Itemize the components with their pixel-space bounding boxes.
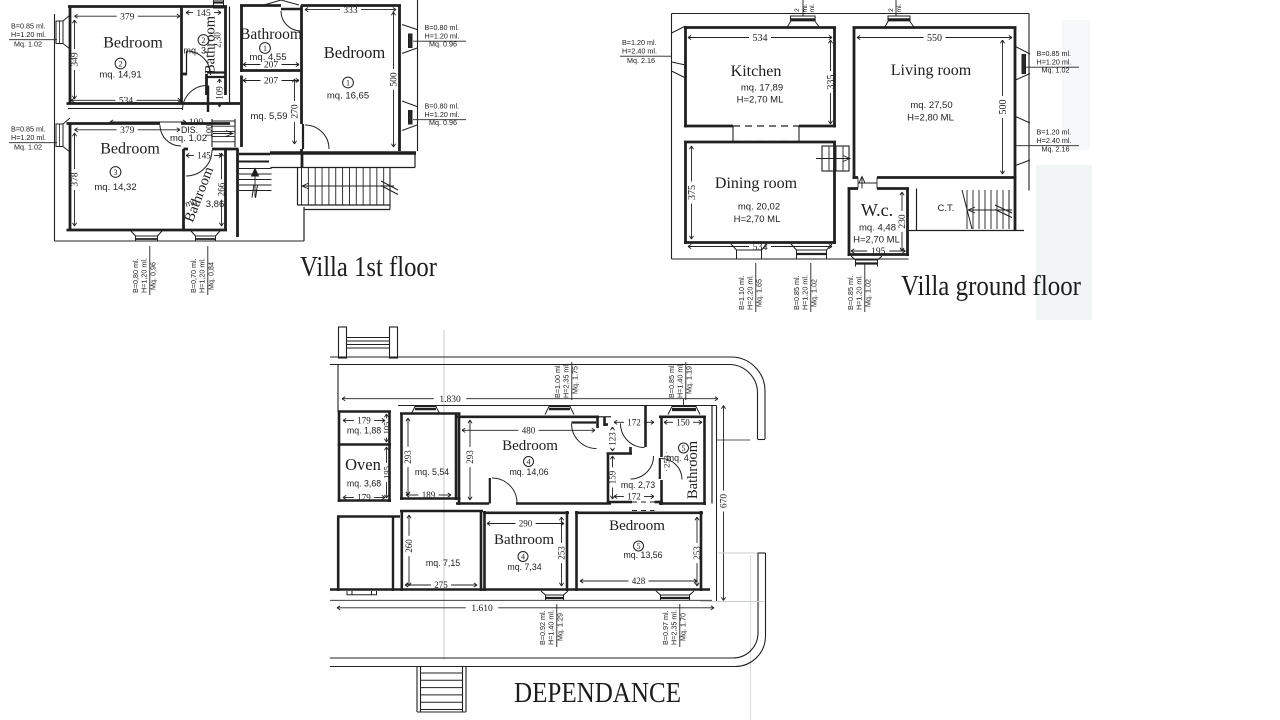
svg-text:H=2,70 ML: H=2,70 ML xyxy=(737,95,784,106)
svg-text:Villa 1st floor: Villa 1st floor xyxy=(300,251,437,283)
svg-text:335: 335 xyxy=(826,75,837,90)
svg-text:W.c.: W.c. xyxy=(861,200,893,220)
svg-text:ml.: ml. xyxy=(802,3,809,12)
svg-text:Villa ground floor: Villa ground floor xyxy=(901,270,1081,302)
svg-text:H=2.40 ml.: H=2.40 ml. xyxy=(622,47,657,56)
svg-text:1.830: 1.830 xyxy=(439,395,461,405)
svg-text:Mq. 1.70: Mq. 1.70 xyxy=(679,613,688,641)
svg-text:H=1.20 ml.: H=1.20 ml. xyxy=(11,30,46,39)
svg-text:Mq. 1.02: Mq. 1.02 xyxy=(810,279,819,307)
svg-text:Bedroom: Bedroom xyxy=(324,43,386,62)
svg-text:H=2.35 ml.: H=2.35 ml. xyxy=(670,610,679,645)
svg-text:H=1.20 ml.: H=1.20 ml. xyxy=(801,275,810,310)
svg-text:Dining room: Dining room xyxy=(715,175,798,192)
svg-text:150: 150 xyxy=(676,417,690,427)
svg-text:4: 4 xyxy=(527,457,531,466)
svg-text:2: 2 xyxy=(202,36,206,45)
svg-text:Mq. 0.96: Mq. 0.96 xyxy=(429,40,457,49)
svg-text:H=1,20 ml.: H=1,20 ml. xyxy=(198,258,207,293)
svg-text:195: 195 xyxy=(381,466,391,479)
svg-text:mq. 27,50: mq. 27,50 xyxy=(910,100,952,111)
svg-text:Mq. 1.02: Mq. 1.02 xyxy=(1042,66,1070,75)
svg-text:207: 207 xyxy=(264,61,279,71)
svg-text:253: 253 xyxy=(661,455,671,468)
svg-text:Mq. 2.16: Mq. 2.16 xyxy=(1042,145,1070,154)
svg-text:1.610: 1.610 xyxy=(471,604,493,614)
svg-text:378: 378 xyxy=(71,172,81,187)
svg-text:mq. 3,: mq. 3, xyxy=(183,46,208,56)
svg-text:Mq. 0.96: Mq. 0.96 xyxy=(429,118,457,127)
svg-text:333: 333 xyxy=(343,6,358,16)
svg-text:H=2,70 ML: H=2,70 ML xyxy=(734,214,781,225)
svg-text:mq. 14,06: mq. 14,06 xyxy=(509,467,548,477)
svg-text:293: 293 xyxy=(465,450,475,464)
svg-text:Mq. 1.75: Mq. 1.75 xyxy=(571,366,580,394)
svg-text:DEPENDANCE: DEPENDANCE xyxy=(514,678,681,709)
svg-text:270: 270 xyxy=(291,104,301,119)
svg-text:179: 179 xyxy=(357,416,371,426)
svg-text:mq. 4,48: mq. 4,48 xyxy=(859,223,896,234)
svg-text:189: 189 xyxy=(422,490,436,500)
svg-text:mq. 14,91: mq. 14,91 xyxy=(99,70,141,81)
svg-text:mq. 16,65: mq. 16,65 xyxy=(327,91,369,102)
svg-text:Bedroom: Bedroom xyxy=(103,35,163,52)
svg-text:2: 2 xyxy=(119,59,123,68)
svg-text:266: 266 xyxy=(217,182,227,196)
svg-text:230: 230 xyxy=(898,214,908,229)
svg-text:C.T.: C.T. xyxy=(938,203,955,214)
svg-text:mq. 5,54: mq. 5,54 xyxy=(415,467,449,477)
svg-text:428: 428 xyxy=(632,576,646,586)
svg-text:Mq. 1.02: Mq. 1.02 xyxy=(864,279,873,307)
svg-text:mq. 17,89: mq. 17,89 xyxy=(741,83,783,94)
svg-text:Mq. 1.19: Mq. 1.19 xyxy=(685,366,694,394)
svg-text:mq. 7,15: mq. 7,15 xyxy=(426,558,460,568)
svg-text:H=1.40 ml.: H=1.40 ml. xyxy=(547,610,556,645)
svg-text:Mq. 1.02: Mq. 1.02 xyxy=(14,40,42,49)
svg-text:Bedroom: Bedroom xyxy=(502,438,558,454)
svg-text:253: 253 xyxy=(692,546,702,560)
svg-text:H=2,70 ML: H=2,70 ML xyxy=(853,235,900,246)
svg-text:mq. 5,59: mq. 5,59 xyxy=(251,111,288,122)
svg-text:550: 550 xyxy=(927,33,942,44)
svg-text:Mq. 0,84: Mq. 0,84 xyxy=(207,262,216,290)
svg-text:mq. 13,56: mq. 13,56 xyxy=(623,550,662,560)
svg-text:mq. 1,88: mq. 1,88 xyxy=(347,426,381,436)
svg-text:500: 500 xyxy=(998,100,1009,115)
svg-text:534: 534 xyxy=(119,97,134,107)
svg-text:2,30: 2,30 xyxy=(213,32,223,48)
svg-text:179: 179 xyxy=(357,493,371,503)
svg-text:mq. 7,34: mq. 7,34 xyxy=(507,562,541,572)
svg-text:Bathroom: Bathroom xyxy=(181,164,217,225)
svg-text:105: 105 xyxy=(381,422,391,435)
svg-text:109: 109 xyxy=(215,86,225,100)
svg-text:670: 670 xyxy=(720,494,730,509)
svg-text:159: 159 xyxy=(608,470,618,484)
svg-text:375: 375 xyxy=(687,185,698,200)
svg-text:172: 172 xyxy=(627,492,641,502)
svg-text:mq. 2,73: mq. 2,73 xyxy=(621,480,655,490)
svg-text:534: 534 xyxy=(753,242,768,253)
svg-text:mq. 20,02: mq. 20,02 xyxy=(738,202,780,213)
svg-text:253: 253 xyxy=(557,546,567,560)
svg-text:534: 534 xyxy=(753,33,768,44)
svg-text:Bathroom: Bathroom xyxy=(685,440,701,499)
svg-text:H=1.20 ml.: H=1.20 ml. xyxy=(855,275,864,310)
svg-text:mq. 14,32: mq. 14,32 xyxy=(94,182,136,193)
svg-text:3: 3 xyxy=(114,168,118,177)
svg-text:379: 379 xyxy=(120,12,135,22)
svg-text:H=1.20 ml.: H=1.20 ml. xyxy=(11,133,46,142)
svg-text:Bathroom: Bathroom xyxy=(494,532,554,548)
svg-text:123: 123 xyxy=(608,432,618,446)
svg-text:H=1.40 ml.: H=1.40 ml. xyxy=(676,363,685,398)
svg-text:1: 1 xyxy=(346,78,350,87)
svg-text:H=2.35 ml.: H=2.35 ml. xyxy=(562,363,571,398)
svg-text:Mq. 1.02: Mq. 1.02 xyxy=(14,143,42,152)
svg-text:379: 379 xyxy=(120,126,135,136)
svg-text:4: 4 xyxy=(521,552,525,561)
svg-text:ml.: ml. xyxy=(809,3,816,12)
svg-text:275: 275 xyxy=(434,580,448,590)
svg-text:Bedroom: Bedroom xyxy=(100,141,160,158)
svg-text:100: 100 xyxy=(189,118,204,128)
svg-text:207: 207 xyxy=(264,77,279,87)
svg-text:Oven: Oven xyxy=(345,455,381,474)
svg-text:145: 145 xyxy=(197,151,211,161)
svg-text:H=2,80 ML: H=2,80 ML xyxy=(907,113,954,124)
svg-text:293: 293 xyxy=(403,450,413,464)
svg-text:290: 290 xyxy=(519,519,533,529)
svg-text:Mq. 0,96: Mq. 0,96 xyxy=(149,262,158,290)
svg-text:2: 2 xyxy=(794,8,801,12)
svg-text:mq. 3,68: mq. 3,68 xyxy=(347,479,381,489)
svg-text:mq. 1,02: mq. 1,02 xyxy=(170,133,207,144)
svg-text:349: 349 xyxy=(71,52,81,67)
svg-text:2: 2 xyxy=(888,8,895,12)
svg-text:Mq. 1.65: Mq. 1.65 xyxy=(755,279,764,307)
svg-text:Bedroom: Bedroom xyxy=(609,518,665,534)
svg-text:195: 195 xyxy=(871,247,886,257)
svg-text:Mq. 2.16: Mq. 2.16 xyxy=(627,56,655,65)
svg-text:Living room: Living room xyxy=(891,62,972,79)
svg-text:H=2.20 ml.: H=2.20 ml. xyxy=(746,275,755,310)
svg-text:H=1,20 ml.: H=1,20 ml. xyxy=(140,258,149,293)
svg-text:ml.: ml. xyxy=(896,3,903,12)
svg-text:Kitchen: Kitchen xyxy=(731,63,782,80)
svg-text:Mq. 1.29: Mq. 1.29 xyxy=(556,613,565,641)
svg-text:260: 260 xyxy=(404,539,414,553)
svg-text:Bathroom: Bathroom xyxy=(240,26,302,43)
svg-text:500: 500 xyxy=(390,72,400,87)
svg-text:172: 172 xyxy=(627,417,641,427)
svg-text:480: 480 xyxy=(522,425,536,435)
